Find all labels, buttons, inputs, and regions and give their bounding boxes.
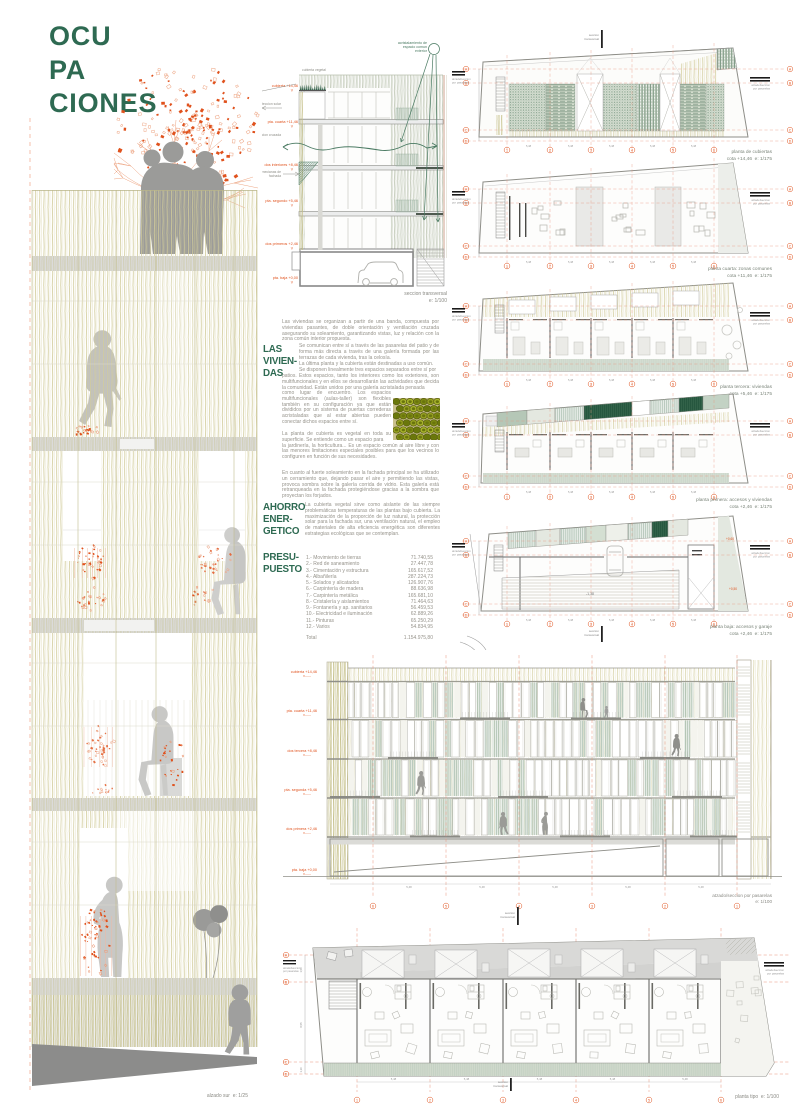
svg-text:transversal: transversal (584, 633, 599, 637)
svg-text:por pasarelas: por pasarelas (452, 552, 470, 556)
svg-text:V: V (291, 168, 294, 172)
svg-text:C: C (465, 245, 468, 249)
svg-text:dos primera +2,46: dos primera +2,46 (286, 827, 317, 831)
svg-text:V――: V―― (303, 831, 311, 835)
svg-text:pta. cuarta +11,46: pta. cuarta +11,46 (268, 120, 298, 124)
svg-text:D: D (789, 486, 792, 490)
svg-text:5: 5 (445, 904, 447, 908)
svg-text:3: 3 (590, 382, 592, 386)
svg-text:ventilacion cruzada: ventilacion cruzada (262, 133, 281, 137)
svg-text:5,48: 5,48 (691, 618, 697, 622)
svg-text:por pasarelas: por pasarelas (452, 317, 470, 321)
svg-text:B: B (789, 434, 792, 438)
svg-text:2: 2 (549, 264, 551, 268)
svg-text:3: 3 (590, 264, 592, 268)
svg-text:3: 3 (590, 622, 592, 626)
svg-text:V: V (291, 125, 294, 129)
svg-text:2: 2 (549, 622, 551, 626)
svg-text:A: A (465, 68, 468, 72)
svg-text:5,48: 5,48 (526, 144, 532, 148)
svg-text:A: A (465, 540, 468, 544)
svg-text:2: 2 (549, 148, 551, 152)
svg-text:6,55: 6,55 (299, 1022, 303, 1028)
svg-text:C: C (789, 475, 792, 479)
svg-text:atzado/seccion por pasarelas: atzado/seccion por pasarelas (712, 893, 772, 898)
svg-text:por pasarelas: por pasarelas (452, 200, 470, 204)
svg-text:5: 5 (672, 382, 674, 386)
svg-text:C: C (465, 603, 468, 607)
svg-text:5,48: 5,48 (610, 1077, 616, 1081)
svg-text:6: 6 (720, 1098, 722, 1102)
svg-text:5,48: 5,48 (391, 1077, 397, 1081)
svg-text:A: A (789, 68, 792, 72)
svg-text:A: A (465, 305, 468, 309)
svg-text:5,48: 5,48 (650, 260, 656, 264)
svg-text:5,48: 5,48 (691, 378, 697, 382)
svg-text:5,48: 5,48 (650, 144, 656, 148)
svg-text:5,48: 5,48 (568, 618, 574, 622)
svg-text:por pasarelas: por pasarelas (283, 969, 299, 973)
svg-text:2: 2 (549, 495, 551, 499)
svg-text:4: 4 (575, 1098, 577, 1102)
svg-text:5: 5 (672, 264, 674, 268)
svg-text:5: 5 (648, 1098, 650, 1102)
svg-text:D: D (285, 1073, 288, 1077)
svg-text:5,48: 5,48 (406, 885, 412, 889)
svg-text:dos interiores +8,46: dos interiores +8,46 (265, 163, 298, 167)
svg-text:D: D (789, 256, 792, 260)
svg-text:5,48: 5,48 (568, 144, 574, 148)
svg-text:planta primera: accesos y vivi: planta primera: accesos y viviendas (696, 497, 773, 503)
svg-text:5,48: 5,48 (609, 260, 615, 264)
svg-text:1,50: 1,50 (299, 967, 303, 973)
svg-text:B: B (789, 319, 792, 323)
svg-text:5,48: 5,48 (650, 618, 656, 622)
svg-text:4: 4 (631, 148, 633, 152)
svg-text:1: 1 (736, 904, 738, 908)
svg-text:B: B (789, 82, 792, 86)
svg-text:por pasarelas: por pasarelas (753, 201, 771, 205)
svg-text:C: C (465, 363, 468, 367)
svg-text:B: B (789, 202, 792, 206)
svg-text:3: 3 (590, 495, 592, 499)
svg-text:2: 2 (664, 904, 666, 908)
svg-text:por pasarelas: por pasarelas (753, 86, 771, 90)
svg-text:V――: V―― (303, 792, 311, 796)
svg-text:5,48: 5,48 (526, 378, 532, 382)
svg-text:5,48: 5,48 (609, 490, 615, 494)
svg-text:D: D (789, 140, 792, 144)
svg-text:por pasarelas: por pasarelas (753, 321, 771, 325)
svg-text:A: A (789, 540, 792, 544)
svg-text:C: C (789, 363, 792, 367)
svg-text:D: D (465, 614, 468, 618)
svg-text:2: 2 (429, 1098, 431, 1102)
svg-text:V: V (291, 281, 294, 285)
svg-text:A: A (465, 188, 468, 192)
svg-text:5: 5 (672, 622, 674, 626)
svg-text:C: C (285, 1061, 288, 1065)
svg-text:cota +2,46 e: 1/175: cota +2,46 e: 1/175 (729, 631, 772, 637)
svg-text:5,48: 5,48 (609, 144, 615, 148)
svg-text:4: 4 (631, 264, 633, 268)
svg-text:1: 1 (356, 1098, 358, 1102)
svg-text:5,48: 5,48 (568, 378, 574, 382)
svg-text:cota +2,46 e: 1/175: cota +2,46 e: 1/175 (729, 504, 772, 510)
svg-text:-1,38: -1,38 (586, 592, 594, 596)
svg-text:C: C (789, 603, 792, 607)
svg-text:planta tipo e: 1/100: planta tipo e: 1/100 (735, 1094, 779, 1100)
svg-text:5,48: 5,48 (526, 260, 532, 264)
svg-text:cubierta vegetal: cubierta vegetal (302, 68, 326, 72)
svg-text:5,48: 5,48 (479, 885, 485, 889)
svg-text:6: 6 (713, 382, 715, 386)
svg-text:5,48: 5,48 (526, 618, 532, 622)
svg-text:6: 6 (372, 904, 374, 908)
svg-text:5,48: 5,48 (552, 885, 558, 889)
svg-text:V――: V―― (303, 713, 311, 717)
svg-text:pta. segunda +5,46: pta. segunda +5,46 (284, 788, 317, 792)
svg-text:D: D (789, 614, 792, 618)
svg-text:transversal: transversal (584, 37, 599, 41)
svg-text:5,48: 5,48 (691, 260, 697, 264)
svg-text:5,48: 5,48 (568, 490, 574, 494)
svg-text:dos primeros +2,46: dos primeros +2,46 (265, 242, 298, 246)
svg-text:4: 4 (631, 622, 633, 626)
svg-text:fachada: fachada (269, 174, 281, 178)
svg-text:+0,50: +0,50 (729, 587, 737, 591)
svg-text:3: 3 (591, 904, 593, 908)
svg-text:4: 4 (631, 382, 633, 386)
svg-text:por pasarelas: por pasarelas (452, 432, 470, 436)
svg-text:alzado sur e: 1/25: alzado sur e: 1/25 (207, 1093, 248, 1099)
svg-text:5,48: 5,48 (537, 1077, 543, 1081)
svg-text:V――: V―― (303, 674, 311, 678)
svg-text:+0,60: +0,60 (726, 537, 734, 541)
svg-text:V――: V―― (303, 753, 311, 757)
svg-text:seccion transversal: seccion transversal (404, 291, 447, 297)
svg-text:pta. baja +0,00: pta. baja +0,00 (273, 276, 298, 280)
svg-text:3: 3 (502, 1098, 504, 1102)
svg-text:proteccion solar: proteccion solar (262, 102, 282, 106)
svg-text:B: B (285, 981, 288, 985)
svg-text:5,48: 5,48 (691, 490, 697, 494)
svg-text:5,48: 5,48 (682, 1077, 688, 1081)
svg-text:5,48: 5,48 (650, 490, 656, 494)
svg-text:D: D (465, 486, 468, 490)
svg-text:B: B (789, 554, 792, 558)
svg-text:V: V (291, 247, 294, 251)
svg-text:cota +11,46 e: 1/175: cota +11,46 e: 1/175 (727, 273, 772, 279)
svg-text:por pasarelas: por pasarelas (753, 432, 771, 436)
svg-text:5,48: 5,48 (691, 144, 697, 148)
svg-text:cota +14,46 e: 1/175: cota +14,46 e: 1/175 (727, 156, 773, 162)
svg-text:transversal: transversal (493, 1084, 508, 1088)
svg-text:A: A (285, 954, 288, 958)
svg-text:planta tercera: viviendas: planta tercera: viviendas (720, 384, 773, 390)
svg-text:1: 1 (506, 382, 508, 386)
svg-text:pta. segundo +5,46: pta. segundo +5,46 (265, 199, 298, 203)
svg-text:5,48: 5,48 (568, 260, 574, 264)
svg-text:1: 1 (506, 495, 508, 499)
svg-text:A: A (789, 420, 792, 424)
svg-text:1: 1 (506, 264, 508, 268)
svg-text:transversal: transversal (500, 915, 515, 919)
svg-text:1: 1 (506, 622, 508, 626)
svg-text:1: 1 (506, 148, 508, 152)
svg-text:5: 5 (672, 148, 674, 152)
svg-text:5,48: 5,48 (650, 378, 656, 382)
svg-text:planta baja: accesos y garaje: planta baja: accesos y garaje (710, 624, 772, 630)
svg-text:3: 3 (590, 148, 592, 152)
svg-text:por pasarelas: por pasarelas (452, 80, 470, 84)
svg-text:e: 1/100: e: 1/100 (755, 899, 772, 904)
svg-text:V: V (291, 204, 294, 208)
svg-text:D: D (465, 374, 468, 378)
svg-text:cota +5,46 e: 1/175: cota +5,46 e: 1/175 (729, 391, 772, 397)
svg-text:A: A (789, 188, 792, 192)
svg-text:5,48: 5,48 (464, 1077, 470, 1081)
svg-text:D: D (789, 374, 792, 378)
svg-text:V: V (291, 89, 294, 93)
svg-text:A: A (789, 305, 792, 309)
svg-text:5,48: 5,48 (609, 618, 615, 622)
svg-text:exterior: exterior (415, 49, 428, 53)
svg-text:D: D (465, 256, 468, 260)
svg-text:e: 1/100: e: 1/100 (429, 298, 447, 304)
svg-text:5,48: 5,48 (698, 885, 704, 889)
svg-text:C: C (789, 245, 792, 249)
svg-text:4: 4 (631, 495, 633, 499)
svg-text:C: C (465, 129, 468, 133)
svg-text:planta cuarta: zonas comunes: planta cuarta: zonas comunes (708, 266, 773, 272)
svg-text:C: C (789, 129, 792, 133)
svg-text:5,48: 5,48 (609, 378, 615, 382)
svg-text:V――: V―― (303, 872, 311, 876)
svg-text:6: 6 (713, 148, 715, 152)
svg-text:pta. cuarta +11,46: pta. cuarta +11,46 (287, 709, 317, 713)
svg-text:por pasarelas: por pasarelas (753, 554, 771, 558)
svg-text:5: 5 (672, 495, 674, 499)
svg-text:planta de cubiertas: planta de cubiertas (731, 149, 772, 155)
svg-text:por pasarelas: por pasarelas (767, 971, 785, 975)
svg-text:5,48: 5,48 (625, 885, 631, 889)
svg-text:A: A (465, 420, 468, 424)
svg-text:2: 2 (549, 382, 551, 386)
svg-text:1,10: 1,10 (299, 1067, 303, 1073)
svg-text:5,48: 5,48 (526, 490, 532, 494)
svg-text:D: D (465, 140, 468, 144)
svg-text:C: C (465, 475, 468, 479)
